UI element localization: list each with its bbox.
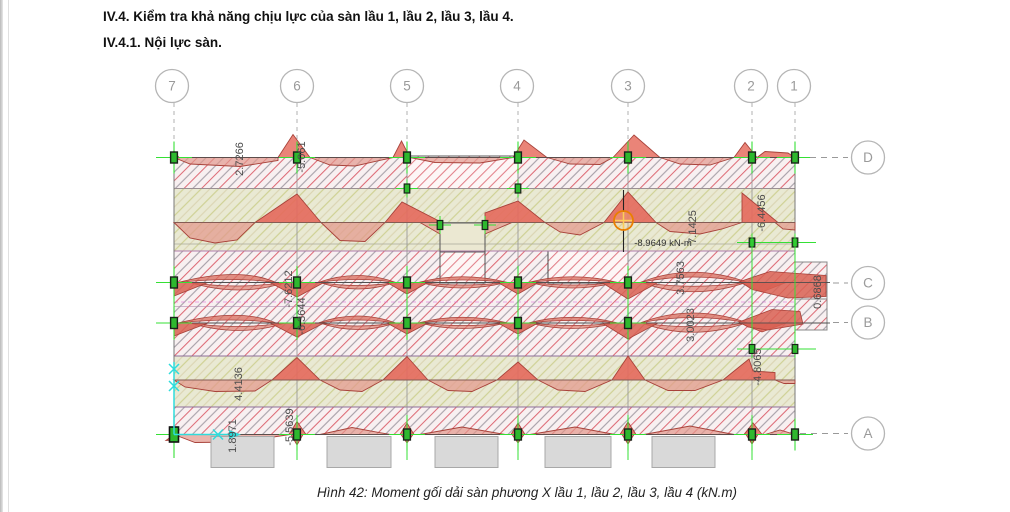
svg-text:2.7266: 2.7266 bbox=[234, 142, 246, 176]
svg-text:-6.4456: -6.4456 bbox=[756, 194, 768, 231]
svg-text:2: 2 bbox=[747, 79, 755, 94]
svg-text:1.8971: 1.8971 bbox=[227, 419, 239, 453]
svg-text:C: C bbox=[863, 276, 873, 291]
svg-text:3.0023: 3.0023 bbox=[685, 308, 697, 342]
svg-text:1: 1 bbox=[790, 79, 798, 94]
svg-text:6: 6 bbox=[293, 79, 301, 94]
svg-text:B: B bbox=[863, 315, 872, 330]
svg-text:5: 5 bbox=[403, 79, 411, 94]
svg-text:-8.9649 kN-m: -8.9649 kN-m bbox=[634, 238, 692, 249]
svg-text:-6.3644: -6.3644 bbox=[296, 297, 308, 334]
svg-text:A: A bbox=[863, 426, 872, 441]
svg-text:3.7563: 3.7563 bbox=[675, 261, 687, 295]
svg-text:0.6868: 0.6868 bbox=[812, 275, 824, 309]
svg-text:-4.8065: -4.8065 bbox=[752, 348, 764, 385]
svg-text:-5.5639: -5.5639 bbox=[284, 408, 296, 445]
svg-text:-5.061: -5.061 bbox=[296, 141, 308, 172]
svg-text:4: 4 bbox=[513, 79, 521, 94]
svg-text:7: 7 bbox=[168, 79, 176, 94]
svg-text:D: D bbox=[863, 150, 873, 165]
svg-text:-7.6212: -7.6212 bbox=[283, 270, 295, 307]
svg-text:4.4136: 4.4136 bbox=[233, 367, 245, 401]
svg-text:3: 3 bbox=[624, 79, 632, 94]
